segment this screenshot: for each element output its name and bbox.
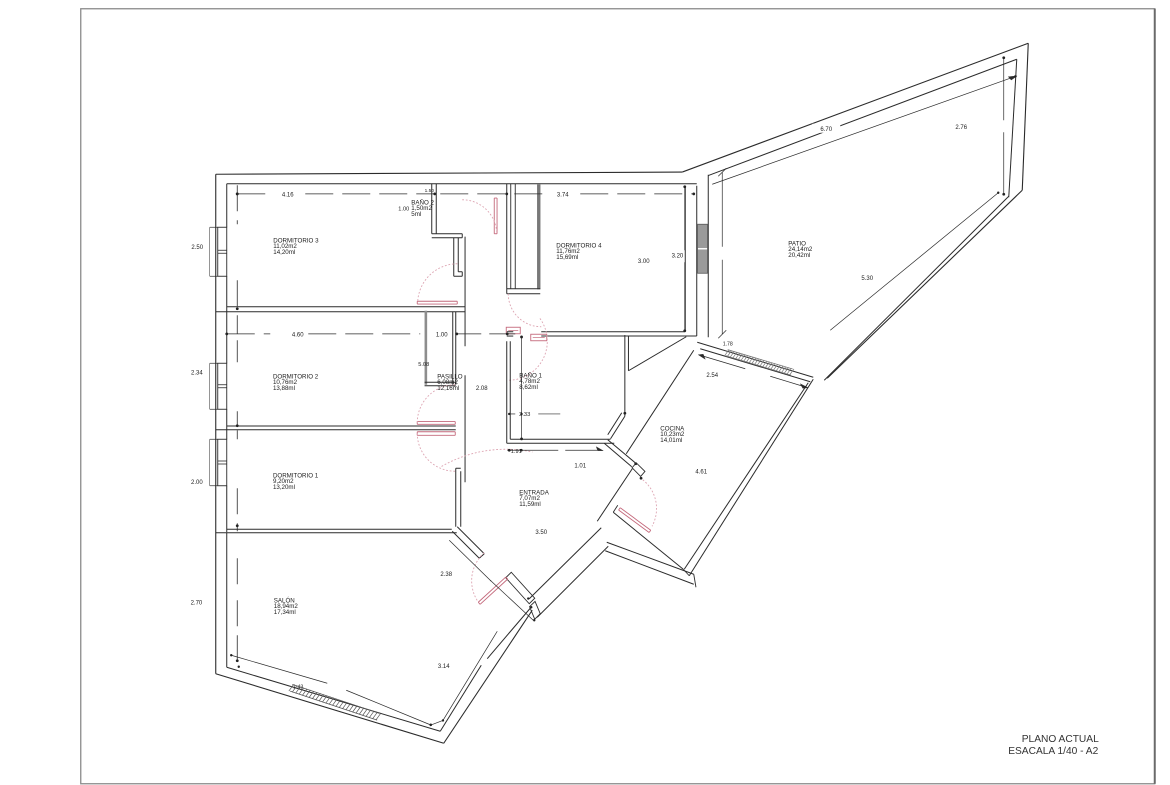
- svg-text:1.50: 1.50: [425, 188, 435, 194]
- svg-text:11,59ml: 11,59ml: [519, 501, 541, 508]
- svg-text:5.08: 5.08: [418, 362, 429, 368]
- svg-text:1.00: 1.00: [398, 206, 409, 212]
- svg-text:1.01: 1.01: [574, 463, 586, 469]
- svg-text:5ml: 5ml: [411, 211, 421, 218]
- svg-text:1.00: 1.00: [436, 332, 448, 338]
- svg-text:3.00: 3.00: [638, 259, 650, 265]
- svg-text:PLANO ACTUAL: PLANO ACTUAL: [1022, 734, 1099, 745]
- svg-text:2.08: 2.08: [476, 386, 488, 392]
- svg-text:3.14: 3.14: [438, 664, 450, 670]
- svg-text:3.20: 3.20: [672, 253, 684, 259]
- svg-text:2.76: 2.76: [955, 125, 967, 131]
- svg-text:1.78: 1.78: [723, 341, 733, 347]
- svg-text:2.50: 2.50: [191, 245, 203, 251]
- svg-text:1.91: 1.91: [511, 449, 522, 455]
- svg-text:12,16ml: 12,16ml: [437, 385, 459, 392]
- svg-text:14,20ml: 14,20ml: [273, 249, 295, 256]
- svg-text:17,34ml: 17,34ml: [274, 609, 296, 616]
- svg-text:ESACALA 1/40 - A2: ESACALA 1/40 - A2: [1008, 746, 1098, 757]
- svg-text:5.30: 5.30: [861, 276, 873, 282]
- svg-text:2.00: 2.00: [191, 480, 203, 486]
- svg-text:3.74: 3.74: [557, 192, 569, 198]
- svg-text:6.70: 6.70: [820, 127, 832, 133]
- svg-text:4.16: 4.16: [282, 192, 294, 198]
- svg-text:3.50: 3.50: [535, 530, 547, 536]
- svg-text:20,42ml: 20,42ml: [788, 252, 810, 259]
- svg-text:2.38: 2.38: [440, 572, 452, 578]
- svg-text:13,20ml: 13,20ml: [273, 484, 295, 491]
- svg-text:2.34: 2.34: [191, 370, 203, 376]
- svg-text:2.70: 2.70: [191, 600, 203, 606]
- svg-text:13,88ml: 13,88ml: [273, 385, 295, 392]
- svg-text:4.60: 4.60: [292, 332, 304, 338]
- svg-text:2.54: 2.54: [706, 373, 718, 379]
- svg-text:4.61: 4.61: [695, 469, 707, 475]
- svg-text:15,69ml: 15,69ml: [556, 254, 578, 261]
- svg-text:8,62ml: 8,62ml: [519, 384, 538, 391]
- svg-text:14,01ml: 14,01ml: [660, 437, 682, 444]
